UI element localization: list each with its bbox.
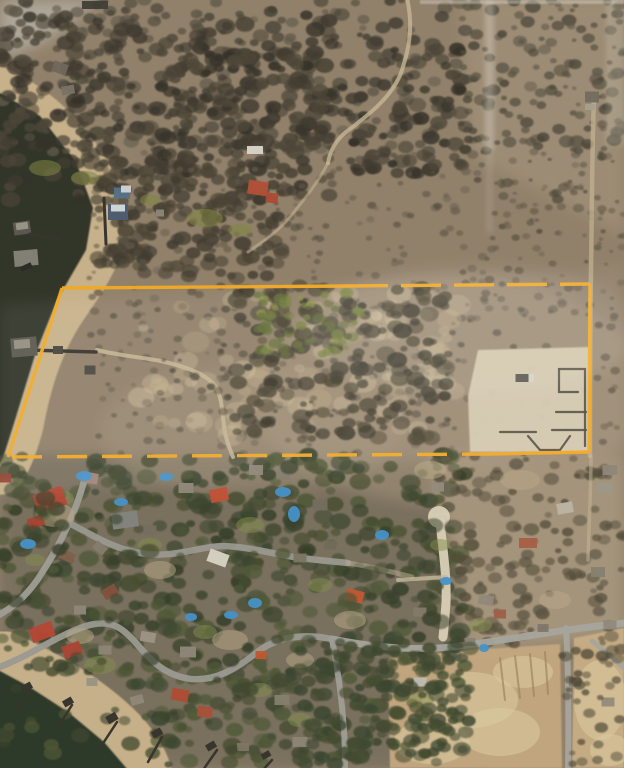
photo-wash	[0, 0, 624, 768]
aerial-photo-canvas	[0, 0, 624, 768]
aerial-property-photo	[0, 0, 624, 768]
photo-wash	[0, 0, 624, 768]
